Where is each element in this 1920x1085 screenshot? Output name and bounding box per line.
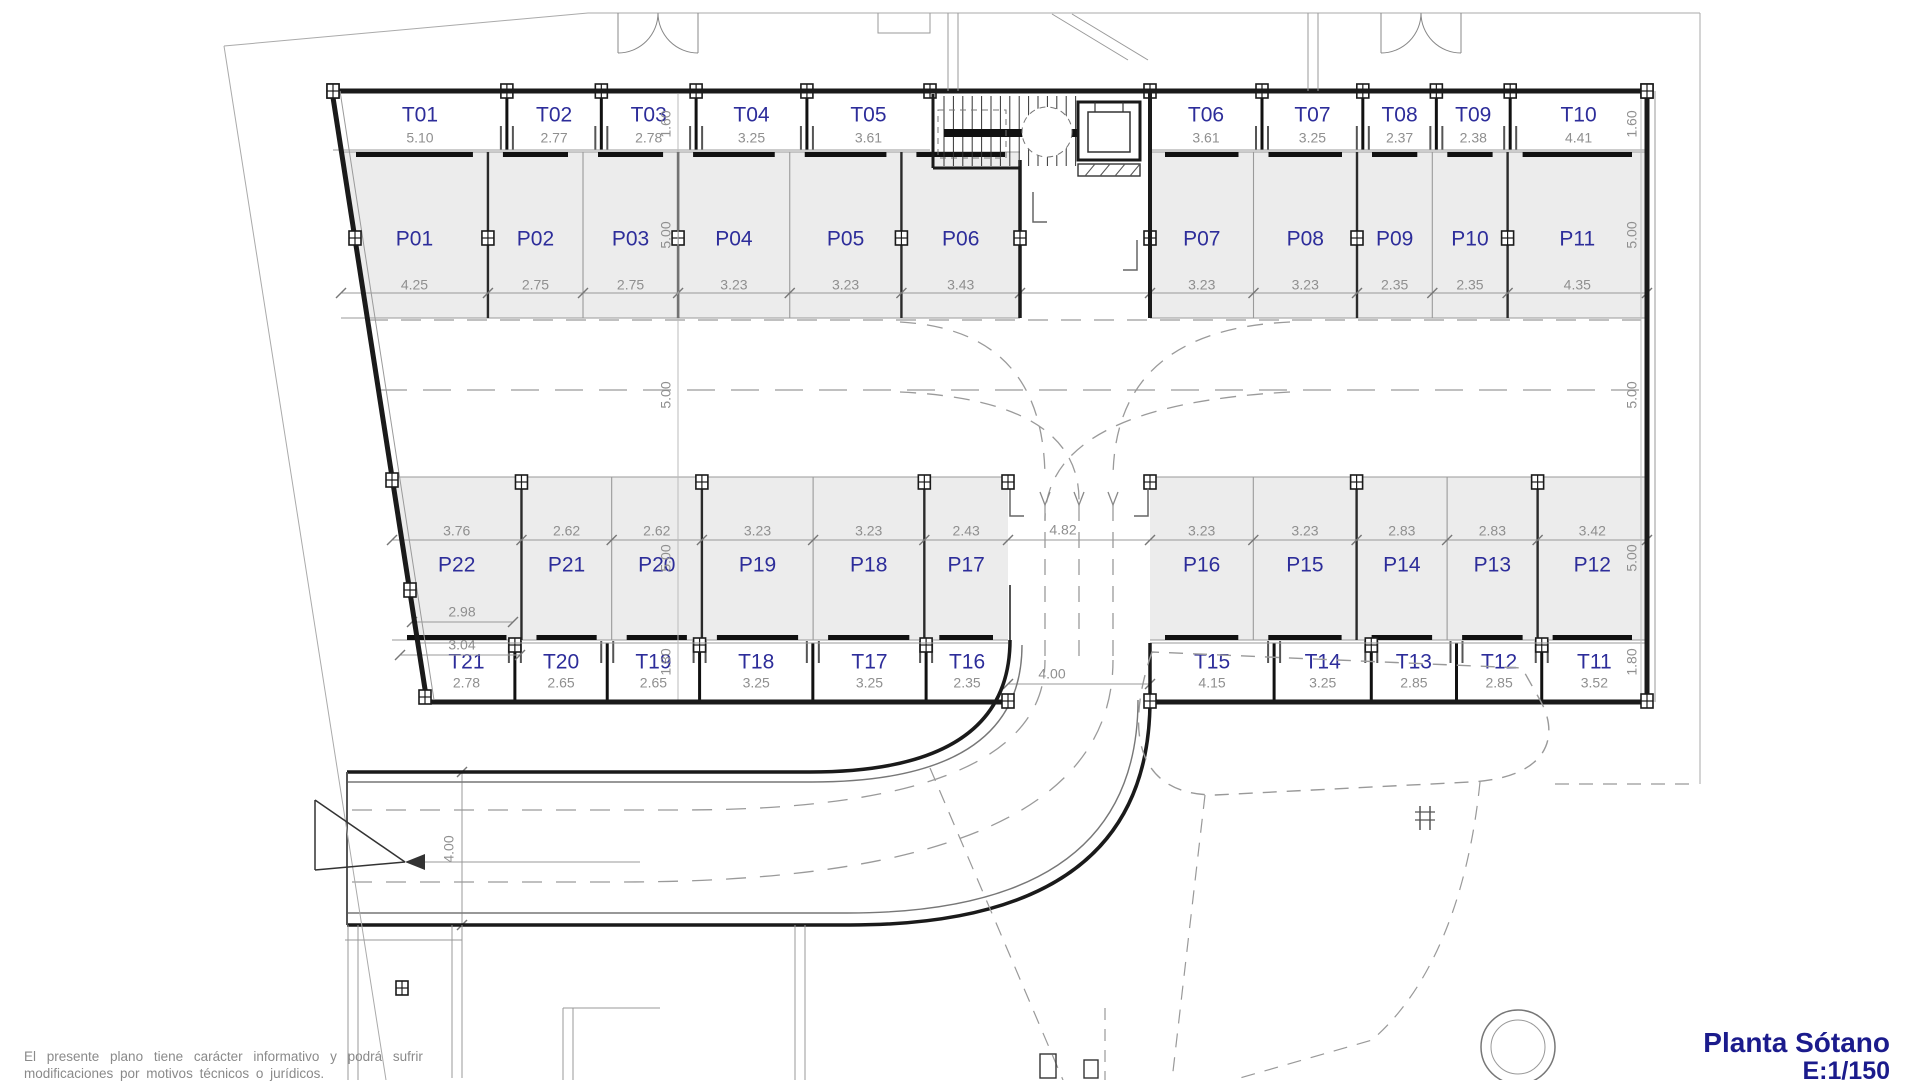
- parking-stall-label: P02: [517, 228, 554, 251]
- parking-stall-label: P11: [1559, 228, 1595, 251]
- storage-room-dimension: 2.38: [1460, 130, 1487, 146]
- storage-room-dimension: 2.35: [953, 675, 980, 691]
- storage-room-label: T02: [536, 104, 572, 127]
- dim-chain-right-1: 5.00: [1624, 221, 1640, 248]
- turn-arc-1: [900, 322, 1045, 480]
- storage-room-T04: T043.25: [733, 104, 770, 146]
- parking-stall-label: P01: [396, 228, 433, 251]
- hatch: [1100, 164, 1110, 176]
- road-curb-outer: [347, 700, 1138, 913]
- upper-diagonal-1: [1052, 14, 1128, 60]
- dim-ramp-width: 4.00: [441, 835, 457, 862]
- storage-room-T15: T154.15: [1194, 651, 1230, 691]
- storage-room-label: T16: [949, 651, 985, 674]
- parking-stall-label: P09: [1376, 228, 1413, 251]
- round-feature-inner: [1491, 1020, 1545, 1074]
- storage-room-label: T12: [1481, 651, 1517, 674]
- dim-chain-left-2: 5.00: [658, 381, 674, 408]
- column-marker: [1351, 475, 1363, 489]
- storage-room-label: T17: [851, 651, 887, 674]
- storage-room-label: T01: [402, 104, 438, 127]
- storage-room-T05: T053.61: [850, 104, 886, 146]
- ramp-arrowhead: [405, 854, 425, 870]
- disclaimer-line-1: El presente plano tiene carácter informa…: [24, 1048, 423, 1065]
- storage-room-dimension: 5.10: [406, 130, 433, 146]
- column-marker: [920, 638, 932, 652]
- storage-room-T09: T092.38: [1455, 104, 1491, 146]
- column-marker: [918, 475, 930, 489]
- stair-turning-circle: [1022, 107, 1072, 157]
- storage-room-T12: T122.85: [1481, 651, 1517, 691]
- bottom_parking_left-area: [392, 477, 1008, 640]
- corridor-hook-right: [1134, 488, 1148, 516]
- column-marker: [895, 231, 907, 245]
- storage-room-label: T08: [1381, 104, 1417, 127]
- parking-stall-dimension: 2.35: [1381, 277, 1408, 293]
- column-marker: [515, 475, 527, 489]
- column-marker: [1351, 231, 1363, 245]
- parking-stall-dimension: 3.23: [1188, 277, 1215, 293]
- parking-stall-dimension: 4.35: [1564, 277, 1591, 293]
- top_storage_left-band: T015.10T022.77T032.78T043.25T053.61: [327, 84, 936, 150]
- storage-room-dimension: 4.15: [1198, 675, 1225, 691]
- column-marker: [327, 84, 339, 98]
- top_storage_right-band: T063.61T073.25T082.37T092.38T104.41: [1144, 84, 1653, 150]
- title-block: Planta Sótano E:1/150: [1703, 1028, 1890, 1085]
- parking-stall-dimension: 2.43: [953, 523, 980, 539]
- hatch: [1130, 164, 1140, 176]
- parking-stall-label: P05: [827, 228, 864, 251]
- parking-stall-dimension: 4.25: [401, 277, 428, 293]
- hatch: [1085, 164, 1095, 176]
- storage-room-label: T13: [1396, 651, 1432, 674]
- storage-room-dimension: 3.52: [1581, 675, 1608, 691]
- terrace-dash-3: [1240, 782, 1480, 1078]
- column-marker: [349, 231, 361, 245]
- storage-room-T02: T022.77: [536, 104, 572, 146]
- column-marker: [1365, 638, 1377, 652]
- storage-room-label: T04: [733, 104, 770, 127]
- column-marker: [1641, 694, 1653, 708]
- column-marker: [696, 475, 708, 489]
- upper-step-detail: [878, 13, 930, 33]
- storage-room-T11: T113.52: [1577, 651, 1612, 691]
- entrance-door-swing-0: [618, 13, 698, 53]
- parking-stall-label: P15: [1286, 554, 1323, 577]
- column-marker: [694, 638, 706, 652]
- storage-room-T14: T143.25: [1305, 651, 1342, 691]
- storage-room-label: T21: [448, 651, 484, 674]
- column-marker: [1002, 475, 1014, 489]
- parking-stall-dimension: 3.42: [1579, 523, 1606, 539]
- core-hook-1: [1033, 192, 1047, 222]
- column-marker: [1014, 231, 1026, 245]
- parking-stall-label: P06: [942, 228, 979, 251]
- storage-room-dimension: 3.25: [1309, 675, 1336, 691]
- storage-room-T16: T162.35: [949, 651, 985, 691]
- dim-chain-left-1: 5.00: [658, 221, 674, 248]
- parking-stall-dimension: 3.23: [1291, 523, 1318, 539]
- pool-terrace: [930, 652, 1698, 1080]
- storage-room-dimension: 2.37: [1386, 130, 1413, 146]
- core-hook-2: [1123, 240, 1137, 270]
- pool-ladder-icon: [1415, 806, 1435, 830]
- column-marker: [482, 231, 494, 245]
- storage-room-T01: T015.10: [402, 104, 438, 146]
- disclaimer-line-2: modificaciones por motivos técnicos o ju…: [24, 1065, 423, 1082]
- parking-stall-label: P03: [612, 228, 649, 251]
- storage-room-T10: T104.41: [1560, 104, 1596, 146]
- storage-room-dimension: 3.61: [1192, 130, 1219, 146]
- disclaimer: El presente plano tiene carácter informa…: [24, 1048, 423, 1082]
- storage-room-dimension: 2.85: [1486, 675, 1513, 691]
- parking-stall-label: P17: [947, 554, 984, 577]
- storage-room-dimension: 3.25: [738, 130, 765, 146]
- terrace-dash-2: [1172, 795, 1205, 1080]
- terrace-dash-1: [930, 768, 1063, 1080]
- storage-room-dimension: 3.25: [856, 675, 883, 691]
- small-structure-2: [1084, 1060, 1098, 1078]
- column-marker: [1144, 475, 1156, 489]
- storage-room-dimension: 2.65: [640, 675, 667, 691]
- storage-room-T21: T212.78: [448, 651, 484, 691]
- storage-room-dimension: 2.78: [453, 675, 480, 691]
- parking-stall-label: P19: [739, 554, 776, 577]
- entrance-door-swing-1: [1381, 13, 1461, 53]
- parking-stall-dimension: 3.23: [832, 277, 859, 293]
- parking-stall-label: P12: [1574, 554, 1611, 577]
- column-marker: [1144, 694, 1156, 708]
- parking-stall-label: P22: [438, 554, 475, 577]
- column-marker: [1532, 475, 1544, 489]
- parking-stall-dimension: 2.35: [1456, 277, 1483, 293]
- parking-stall-dimension: 2.62: [643, 523, 670, 539]
- parking-stall-dimension: 2.75: [617, 277, 644, 293]
- parking-stall-dimension: 3.23: [1188, 523, 1215, 539]
- column-marker: [1536, 638, 1548, 652]
- storage-room-T08: T082.37: [1381, 104, 1417, 146]
- corridor-hook-left: [1010, 488, 1024, 516]
- parking-stall-label: P14: [1383, 554, 1421, 577]
- storage-room-label: T07: [1294, 104, 1330, 127]
- storage-room-dimension: 3.61: [855, 130, 882, 146]
- dim-p22-1: 2.98: [448, 604, 475, 620]
- storage-room-dimension: 4.41: [1565, 130, 1592, 146]
- parking-stall-dimension: 3.23: [720, 277, 747, 293]
- storage-room-T20: T202.65: [543, 651, 579, 691]
- parking-stall-label: P10: [1451, 228, 1488, 251]
- hatch: [1115, 164, 1125, 176]
- plan-title: Planta Sótano: [1703, 1028, 1890, 1058]
- storage-room-dimension: 2.77: [540, 130, 567, 146]
- dim-chain-right-4: 1.80: [1624, 648, 1640, 675]
- parking-stall-label: P21: [548, 554, 585, 577]
- bottom_parking_left-fill: [392, 477, 1008, 640]
- storage-room-T18: T183.25: [738, 651, 774, 691]
- storage-room-label: T09: [1455, 104, 1491, 127]
- parking-stall-dimension: 2.83: [1388, 523, 1415, 539]
- parking-stall-label: P16: [1183, 554, 1220, 577]
- plan-linework: T015.10T022.77T032.78T043.25T053.61T063.…: [0, 0, 1920, 1080]
- lane-arrow-2: [1108, 492, 1118, 505]
- column-marker: [419, 690, 431, 704]
- parking-stall-label: P07: [1183, 228, 1220, 251]
- storage-room-label: T10: [1560, 104, 1596, 127]
- parking-stall-label: P18: [850, 554, 887, 577]
- parking-stall-dimension: 3.43: [947, 277, 974, 293]
- storage-room-label: T05: [850, 104, 886, 127]
- dim-chain-right-0: 1.60: [1624, 110, 1640, 137]
- storage-room-label: T18: [738, 651, 774, 674]
- storage-room-dimension: 2.85: [1400, 675, 1427, 691]
- column-marker: [1002, 694, 1014, 708]
- dim-chain-right-3: 5.00: [1624, 544, 1640, 571]
- parking-stall-label: P13: [1474, 554, 1511, 577]
- parking-stall-label: P08: [1287, 228, 1324, 251]
- dim-p22-2: 3.04: [448, 637, 475, 653]
- dim-chain-left-3: 5.00: [658, 544, 674, 571]
- parking-stall-label: P04: [715, 228, 753, 251]
- column-marker: [509, 638, 521, 652]
- parking-stall-dimension: 2.75: [522, 277, 549, 293]
- parking-stall-dimension: 3.23: [1292, 277, 1319, 293]
- parking-stall-dimension: 3.76: [443, 523, 470, 539]
- bottom_storage_left-band: T212.78T202.65T192.65T183.25T173.25T162.…: [448, 638, 985, 700]
- dim-aisle-entry: 4.82: [1049, 522, 1076, 538]
- column-marker: [1502, 231, 1514, 245]
- dim-chain-left-4: 1.80: [658, 648, 674, 675]
- parking-stall-dimension: 3.23: [744, 523, 771, 539]
- parking-stall-dimension: 2.83: [1479, 523, 1506, 539]
- plan-scale: E:1/150: [1703, 1058, 1890, 1085]
- parking-stall-dimension: 3.23: [855, 523, 882, 539]
- storage-room-T07: T073.25: [1294, 104, 1330, 146]
- upper-diagonal-2: [1072, 14, 1148, 60]
- column-marker: [396, 981, 408, 995]
- storage-room-dimension: 3.25: [743, 675, 770, 691]
- storage-room-label: T06: [1188, 104, 1224, 127]
- column-marker: [386, 473, 398, 487]
- property-line-topleft: [224, 13, 588, 46]
- column-marker: [404, 583, 416, 597]
- storage-room-label: T20: [543, 651, 579, 674]
- dim-chain-right-2: 5.00: [1624, 381, 1640, 408]
- parking-stall-dimension: 2.62: [553, 523, 580, 539]
- road-edge-outer: [347, 700, 1150, 925]
- storage-room-T13: T132.85: [1396, 651, 1432, 691]
- dim-chain-left-0: 1.60: [658, 110, 674, 137]
- bottom_storage_right-band: T154.15T143.25T132.85T122.85T113.52: [1194, 638, 1612, 700]
- storage-room-dimension: 3.25: [1299, 130, 1326, 146]
- storage-room-dimension: 2.65: [547, 675, 574, 691]
- storage-room-T17: T173.25: [851, 651, 887, 691]
- dim-corridor-bottom: 4.00: [1038, 666, 1065, 682]
- storage-room-T06: T063.61: [1188, 104, 1224, 146]
- column-marker: [1641, 84, 1653, 98]
- storage-room-label: T14: [1305, 651, 1342, 674]
- floor-plan-canvas: T015.10T022.77T032.78T043.25T053.61T063.…: [0, 0, 1920, 1080]
- storage-room-label: T11: [1577, 651, 1612, 674]
